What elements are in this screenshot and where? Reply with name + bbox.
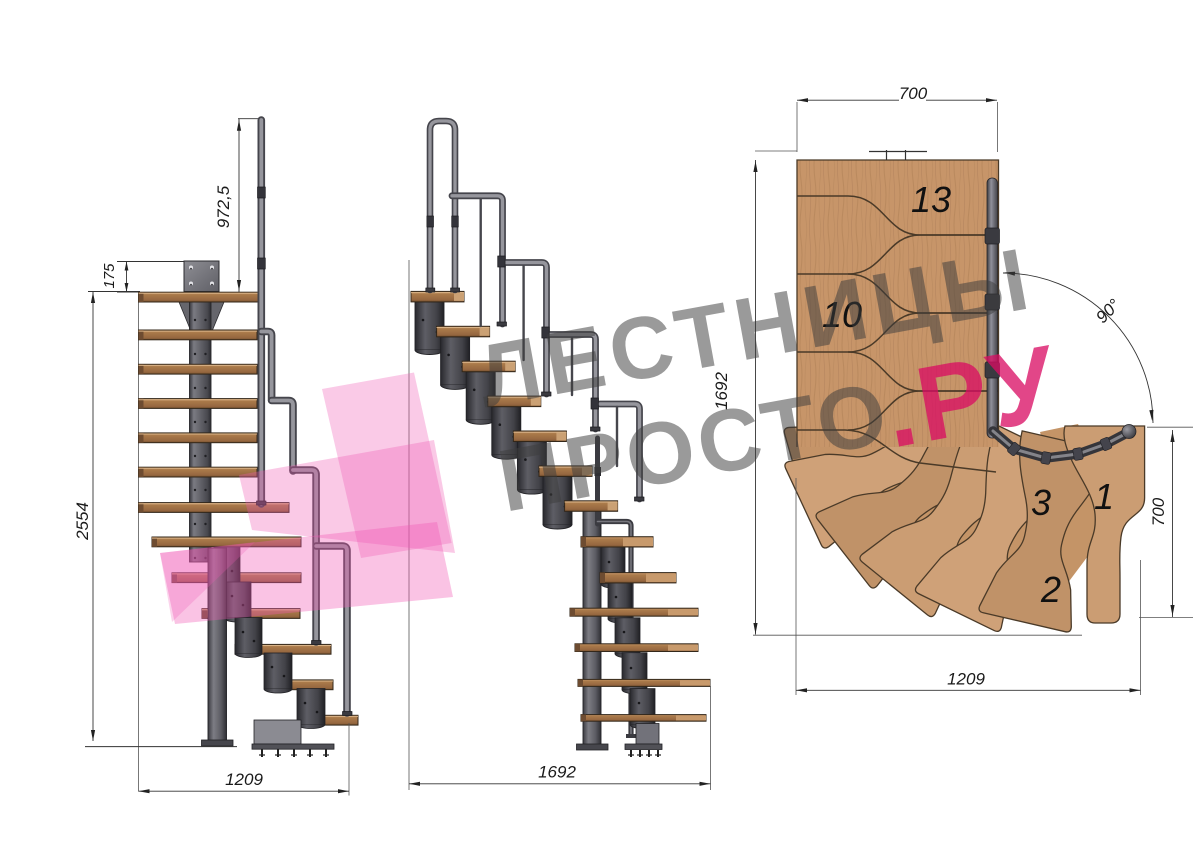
svg-text:700: 700 — [899, 84, 928, 103]
svg-text:3: 3 — [1031, 482, 1051, 523]
svg-text:1209: 1209 — [225, 770, 263, 789]
svg-text:972,5: 972,5 — [214, 185, 233, 228]
svg-text:175: 175 — [101, 263, 118, 289]
svg-text:1692: 1692 — [538, 763, 576, 782]
svg-text:2: 2 — [1040, 569, 1061, 610]
svg-text:1209: 1209 — [947, 670, 985, 689]
svg-text:1: 1 — [1094, 476, 1114, 517]
svg-text:13: 13 — [911, 179, 951, 220]
svg-text:700: 700 — [1149, 497, 1168, 526]
svg-text:2554: 2554 — [73, 502, 92, 541]
